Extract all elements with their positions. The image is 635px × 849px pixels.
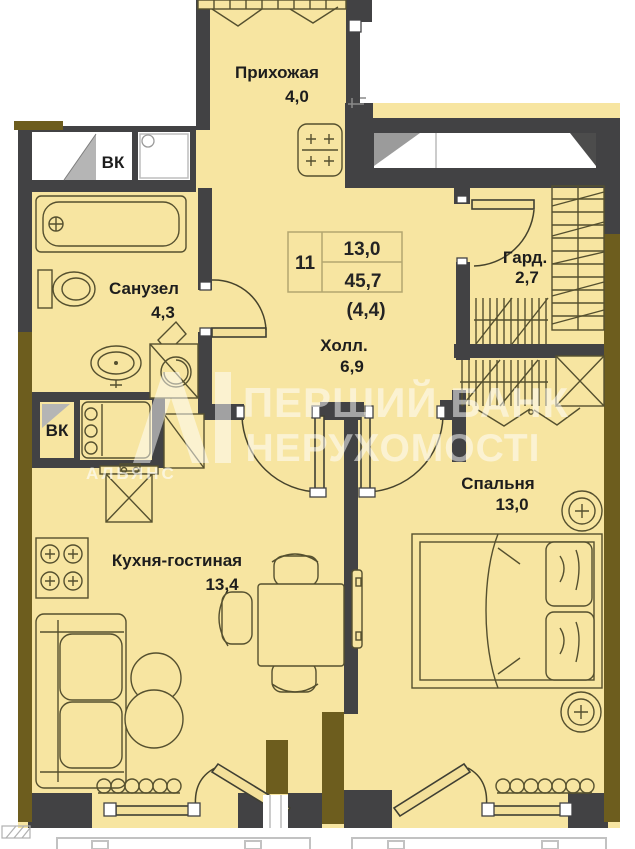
pouf-table [125, 690, 183, 748]
bed [412, 534, 602, 688]
tv-panel [352, 570, 362, 648]
duct-niche-top-right [348, 20, 596, 168]
watermark-line1: ПЕРШИЙ БАНК [243, 378, 569, 426]
room-area-hallway: 4,0 [285, 87, 309, 106]
nightstand [562, 491, 602, 531]
sofa [36, 614, 126, 788]
toilet [38, 270, 95, 308]
floor-plan-canvas: 11 13,0 45,7 (4,4) Прихожая 4,0 ВК Сануз… [0, 0, 635, 849]
pillow [546, 612, 594, 680]
extra-area: (4,4) [346, 300, 385, 321]
stove [36, 538, 88, 598]
watermark-line2: НЕРУХОМОСТІ [246, 427, 541, 470]
chair [274, 556, 318, 586]
watermark: АЛЬЯНС ПЕРШИЙ БАНК НЕРУХОМОСТІ [86, 372, 569, 483]
dining-table [258, 584, 344, 666]
wall-bracket-icon [349, 20, 361, 32]
room-label-bathroom: Санузел [109, 279, 179, 298]
bathtub [36, 196, 186, 252]
shaft-label-vk-kitchen: ВК [46, 421, 69, 440]
room-area-hall: 6,9 [340, 357, 364, 376]
watermark-logo-text: АЛЬЯНС [86, 464, 177, 483]
room-area-kitchen: 13,4 [205, 575, 239, 594]
room-label-hallway: Прихожая [235, 63, 319, 82]
room-area-wardrobe: 2,7 [515, 268, 539, 287]
floor-plan-page: 11 13,0 45,7 (4,4) Прихожая 4,0 ВК Сануз… [0, 0, 635, 849]
living-area: 13,0 [344, 239, 381, 260]
balcony-outline [57, 838, 606, 849]
unit-number: 11 [295, 253, 316, 274]
room-area-bathroom: 4,3 [151, 303, 175, 322]
alliance-logo-bar-icon [215, 372, 231, 463]
room-label-hall: Холл. [320, 336, 367, 355]
chair [222, 592, 252, 644]
room-area-bedroom: 13,0 [495, 495, 528, 514]
shaft-label-vk-top: ВК [102, 153, 125, 172]
room-label-kitchen: Кухня-гостиная [112, 551, 242, 570]
room-label-wardrobe: Гард. [503, 248, 547, 267]
shoe-cabinet [298, 124, 342, 176]
room-label-bedroom: Спальня [461, 474, 534, 493]
nightstand [561, 692, 601, 732]
pillow [546, 542, 592, 606]
total-area: 45,7 [345, 271, 382, 292]
bottom-window [263, 795, 288, 828]
